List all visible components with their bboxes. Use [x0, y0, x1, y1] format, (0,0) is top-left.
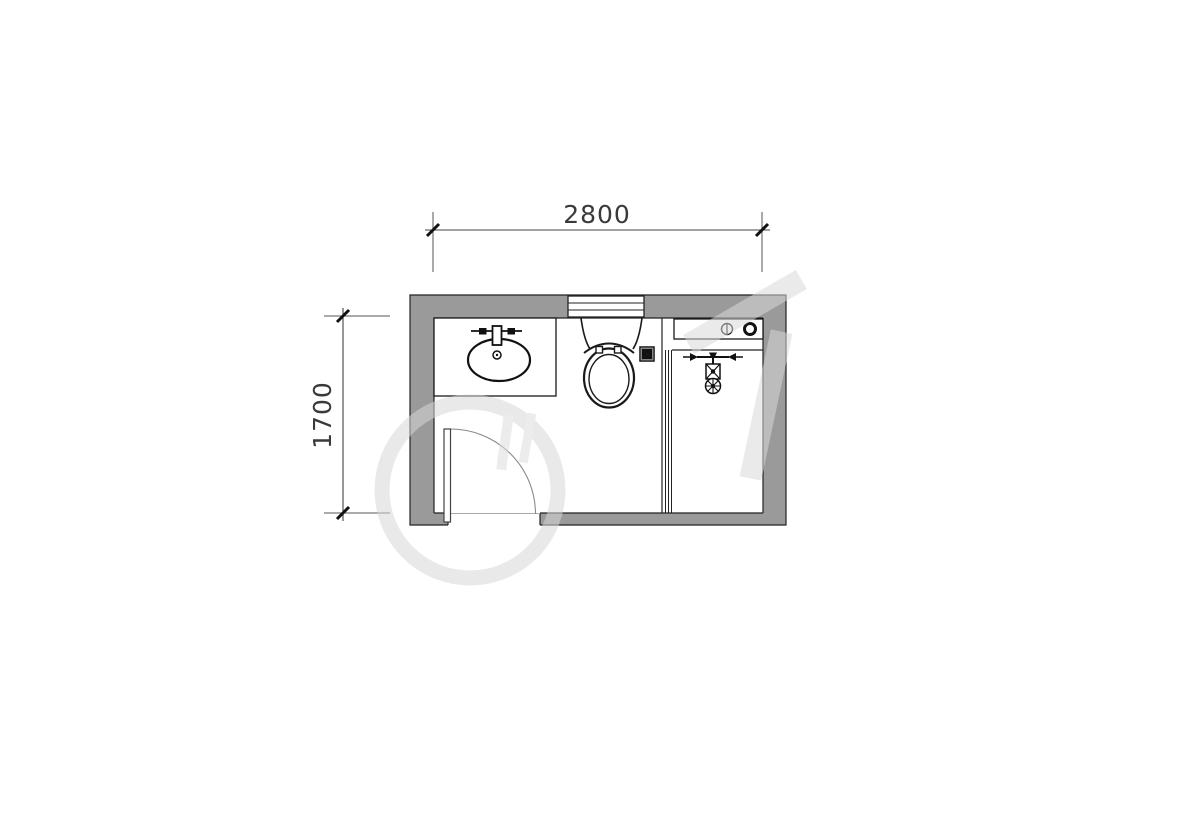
top-dim-label: 2800	[563, 200, 631, 229]
toilet-hinge-right	[615, 347, 622, 354]
left-dim-label: 1700	[308, 381, 337, 449]
toilet-tank-left	[581, 318, 590, 349]
watermark-fragment-1	[496, 415, 514, 471]
toilet-hinge-left	[596, 347, 603, 354]
floorplan-canvas: 2800 1700	[0, 0, 1198, 831]
door-leaf	[444, 429, 451, 522]
toilet	[581, 318, 642, 408]
shower-mixer-icon	[683, 353, 743, 394]
toilet-bowl-outer	[584, 349, 634, 408]
toilet-tank-right	[633, 318, 642, 349]
sink-counter	[434, 318, 556, 396]
top-dimension: 2800	[425, 200, 770, 272]
window-frame	[568, 296, 644, 317]
floor-drain-icon	[640, 347, 654, 361]
basin-drain-dot	[496, 354, 498, 356]
floorplan-drawing: 2800 1700	[0, 0, 1198, 831]
window	[568, 296, 644, 317]
wall-bottom	[540, 513, 786, 525]
shower-area	[662, 318, 763, 513]
shower-partition	[666, 350, 672, 513]
